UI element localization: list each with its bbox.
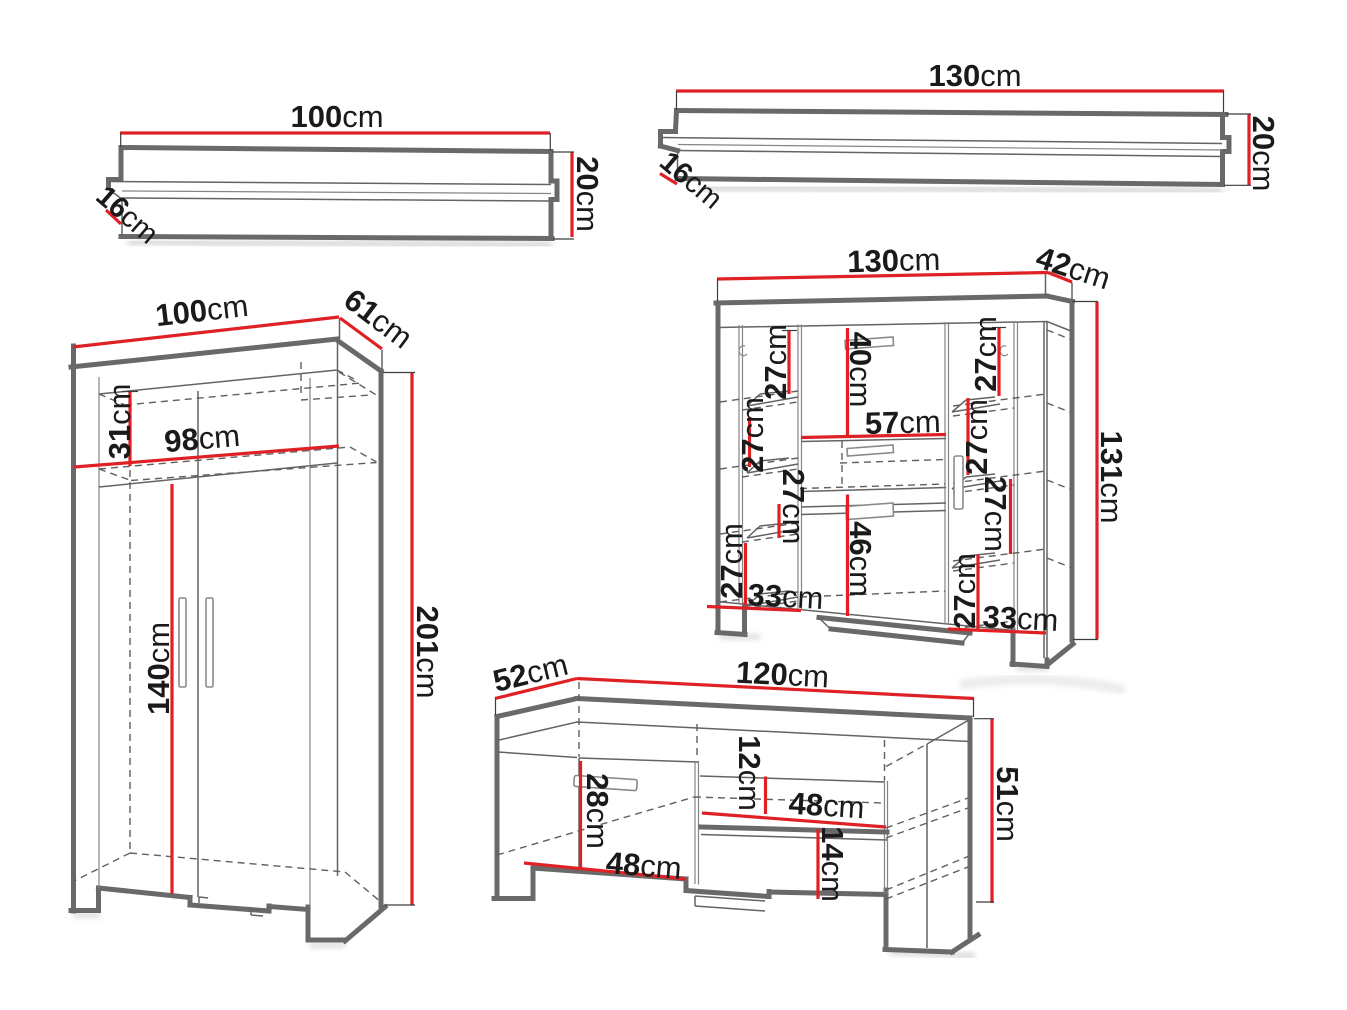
svg-text:140cm: 140cm <box>141 622 176 715</box>
svg-text:131cm: 131cm <box>1094 430 1129 523</box>
svg-text:33cm: 33cm <box>982 599 1060 638</box>
svg-text:98cm: 98cm <box>163 418 242 459</box>
svg-text:20cm: 20cm <box>570 156 605 232</box>
svg-text:27cm: 27cm <box>735 397 770 473</box>
svg-text:27cm: 27cm <box>978 476 1013 552</box>
svg-text:27cm: 27cm <box>776 469 811 545</box>
svg-text:100cm: 100cm <box>290 99 383 134</box>
svg-text:27cm: 27cm <box>968 316 1003 392</box>
svg-text:130cm: 130cm <box>847 242 941 279</box>
svg-text:12cm: 12cm <box>732 735 767 811</box>
svg-text:33cm: 33cm <box>747 577 825 616</box>
svg-text:28cm: 28cm <box>580 773 615 849</box>
svg-text:57cm: 57cm <box>864 404 941 441</box>
svg-text:40cm: 40cm <box>843 332 878 408</box>
svg-text:20cm: 20cm <box>1246 116 1281 192</box>
svg-text:120cm: 120cm <box>735 655 830 695</box>
svg-text:27cm: 27cm <box>758 324 793 400</box>
svg-text:51cm: 51cm <box>990 766 1025 842</box>
svg-text:27cm: 27cm <box>959 399 994 475</box>
svg-text:27cm: 27cm <box>714 523 749 599</box>
svg-text:130cm: 130cm <box>928 58 1021 93</box>
svg-text:14cm: 14cm <box>815 826 850 902</box>
svg-text:27cm: 27cm <box>947 553 982 629</box>
svg-text:48cm: 48cm <box>605 845 683 886</box>
svg-text:48cm: 48cm <box>788 786 866 826</box>
svg-text:201cm: 201cm <box>410 605 445 698</box>
svg-text:31cm: 31cm <box>102 384 137 460</box>
svg-text:46cm: 46cm <box>843 521 878 597</box>
